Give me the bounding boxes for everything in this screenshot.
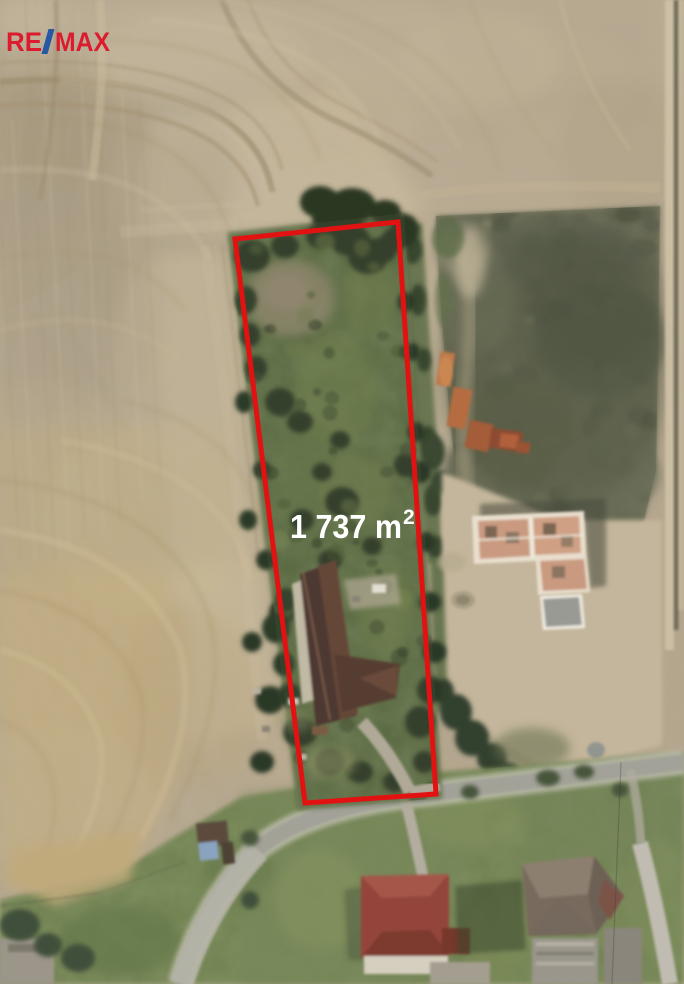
svg-text:RE: RE: [6, 27, 42, 57]
svg-text:2: 2: [403, 506, 415, 529]
svg-text:1 737 m: 1 737 m: [290, 508, 402, 545]
svg-text:MAX: MAX: [55, 27, 110, 57]
